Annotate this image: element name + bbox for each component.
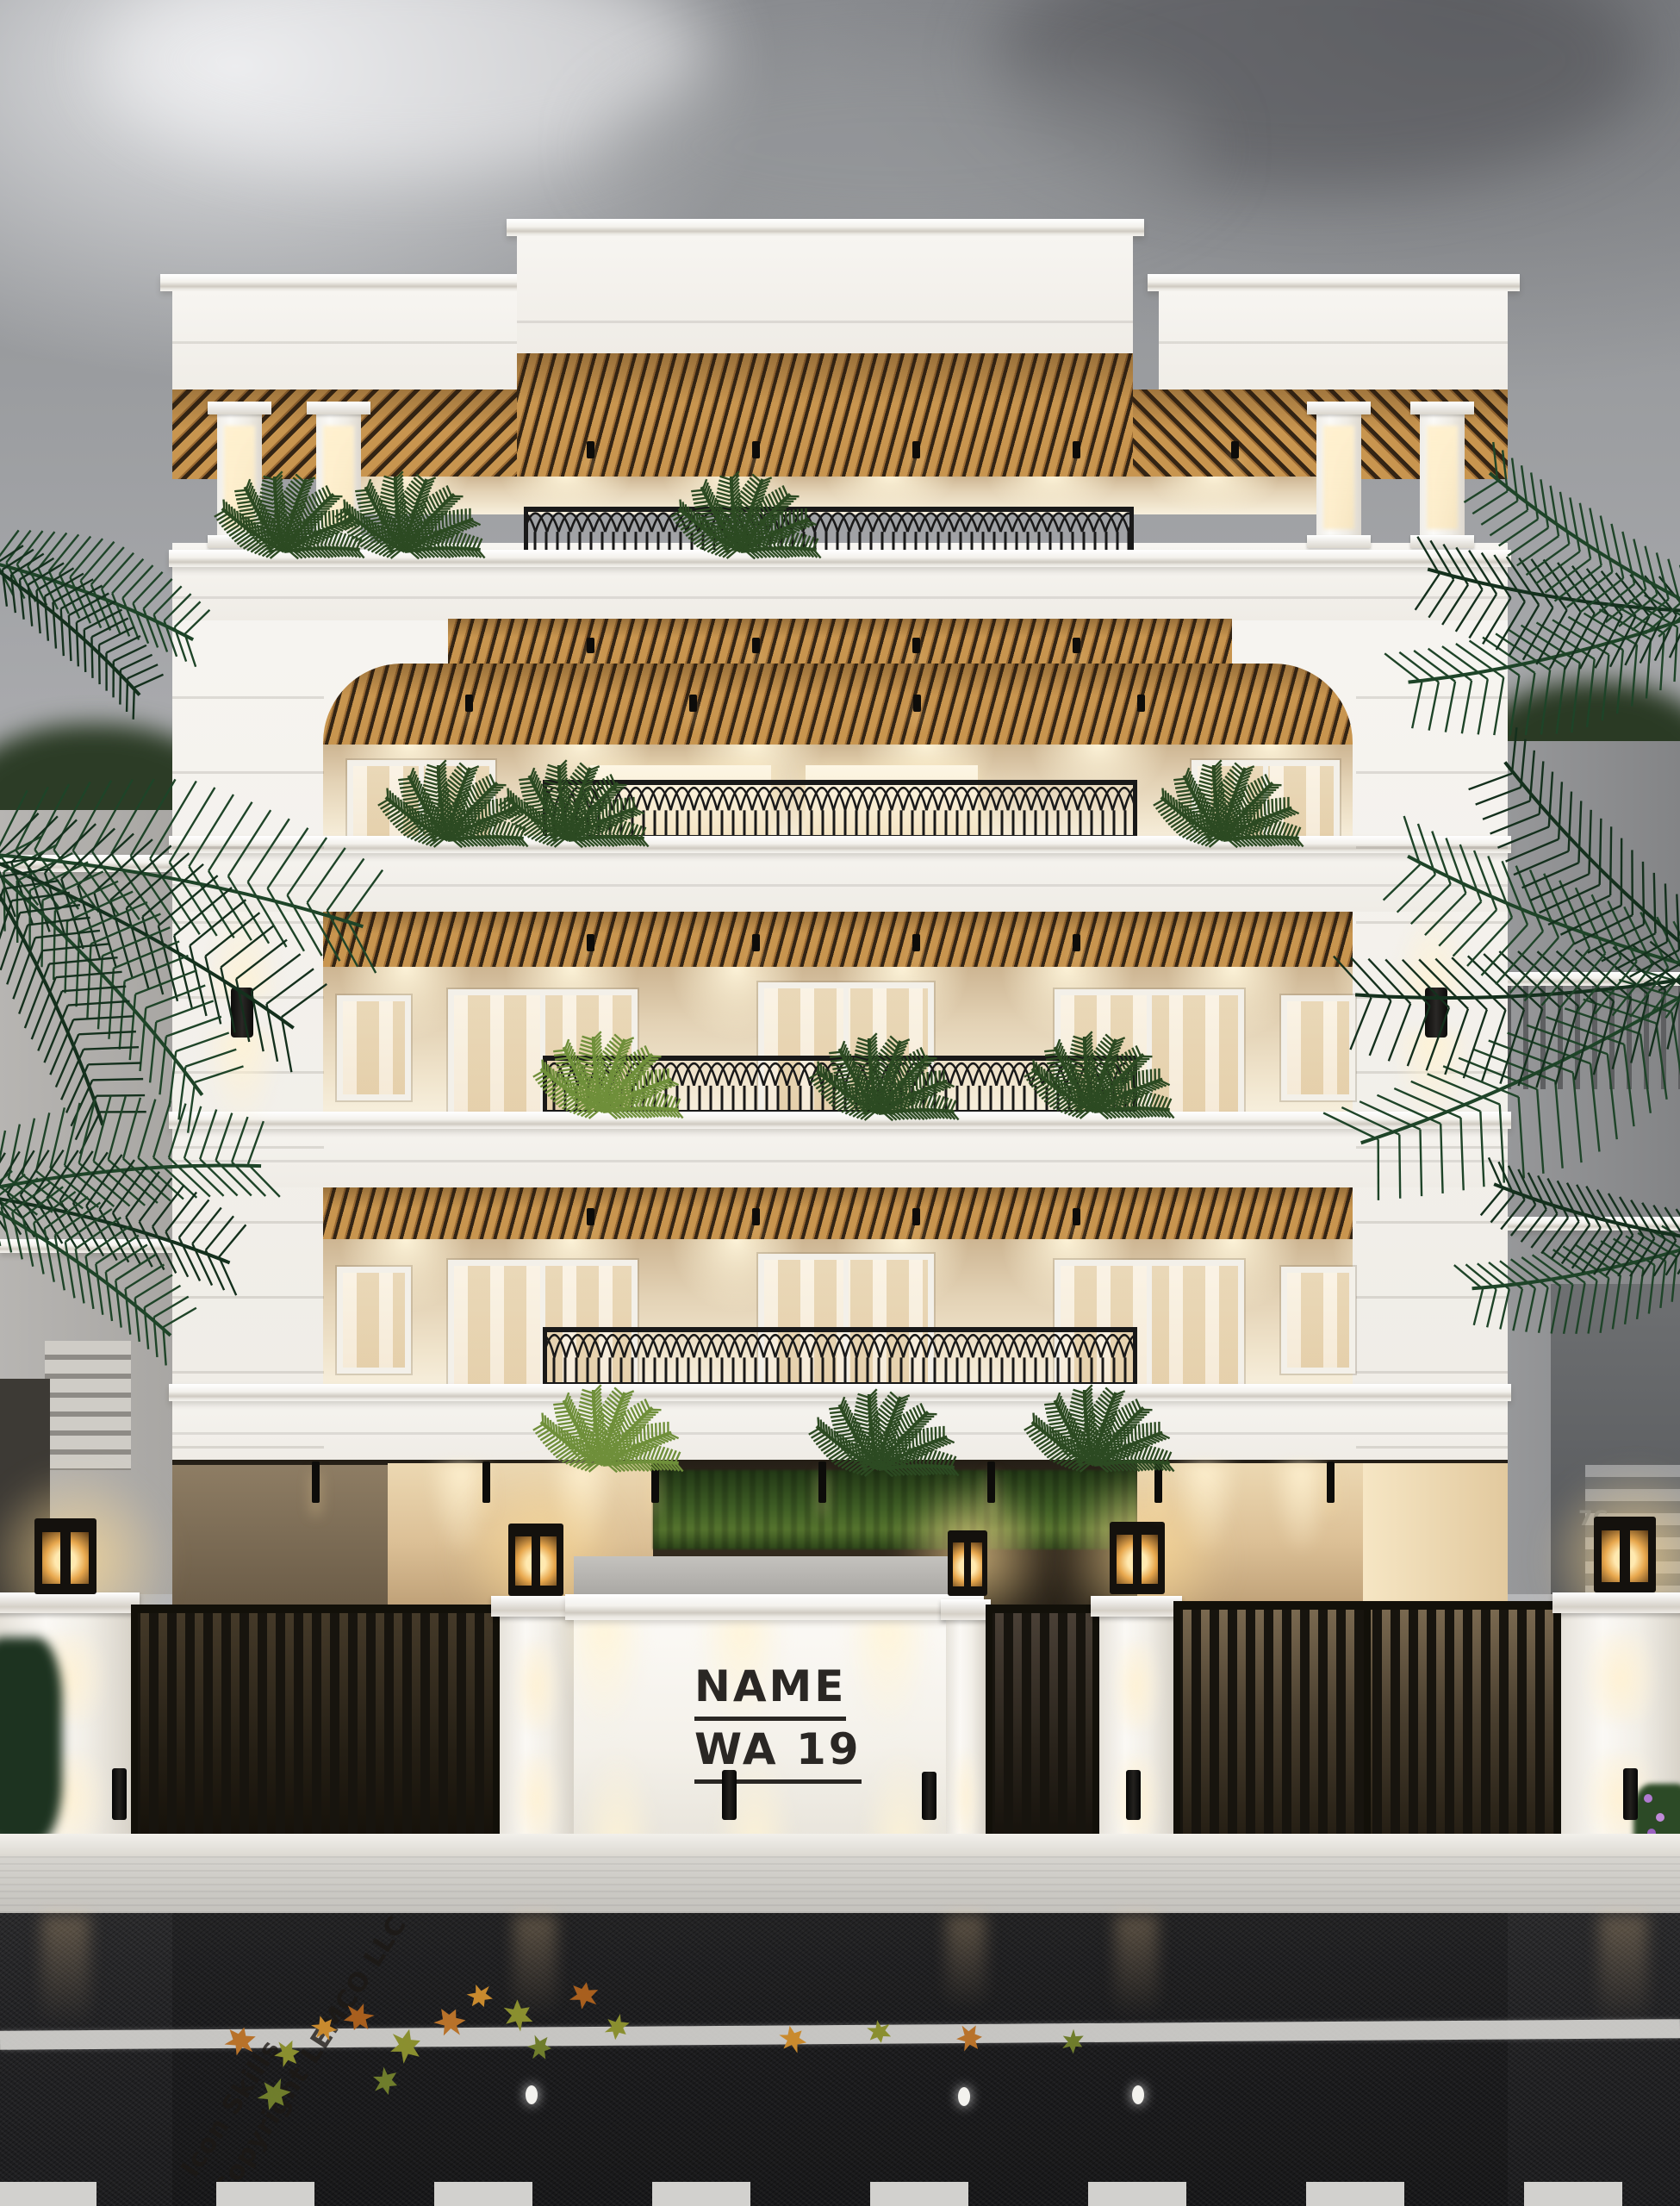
- wall-sconce-icon: [231, 988, 253, 1038]
- soffit-wood-f4: [323, 1187, 1353, 1239]
- pedestrian-gate: [986, 1605, 1099, 1854]
- gate-lamp-icon: [1110, 1522, 1165, 1594]
- stilt-wall-bright-right: [1363, 1463, 1508, 1606]
- reflection-speck: [526, 2085, 538, 2104]
- reflection-speck: [958, 2087, 970, 2106]
- fence-left: [131, 1605, 500, 1856]
- name-plate: NAME WA 19: [694, 1658, 862, 1784]
- gate-lamp-icon: [34, 1518, 96, 1594]
- bollard-light-icon: [112, 1768, 127, 1820]
- gate-lamp-icon: [948, 1530, 987, 1596]
- window: [337, 995, 411, 1100]
- terrace-column: [1420, 407, 1465, 545]
- window: [1281, 995, 1355, 1100]
- sidewalk: [0, 1856, 1680, 1913]
- sconce-downlight: [186, 1032, 298, 1170]
- sconce-downlight: [1377, 1032, 1489, 1170]
- curb: [0, 1834, 1680, 1856]
- roof-cornice-center: [507, 219, 1144, 236]
- slab-cornice: [169, 836, 1511, 853]
- slab-groove: [172, 884, 1508, 887]
- sconce-uplight: [186, 867, 298, 996]
- slab-groove: [172, 1432, 1508, 1435]
- arch-ceiling-wood: [323, 664, 1353, 745]
- soffit-wood-center: [448, 619, 1232, 665]
- bollard-light-icon: [922, 1772, 936, 1820]
- roof-band-left-wing: [172, 291, 521, 396]
- reflection-speck: [1132, 2085, 1144, 2104]
- roof-groove: [1159, 341, 1508, 344]
- crosswalk: [0, 2182, 1680, 2206]
- neighbor-cornice-left: [0, 855, 177, 872]
- shrub-left: [0, 1637, 62, 1844]
- gate-lamp-icon: [1594, 1517, 1656, 1592]
- flower-dots: [1644, 1794, 1652, 1803]
- terrace-column: [1316, 407, 1361, 545]
- name-wall-cap: [565, 1594, 984, 1620]
- light-reflection: [513, 1915, 557, 2018]
- balcony-railing-f2: [543, 780, 1137, 838]
- neighbor-balcony-rail-right: [1506, 986, 1680, 1089]
- light-reflection: [1599, 1915, 1647, 2027]
- light-reflection: [41, 1915, 90, 2027]
- bollard-light-icon: [1126, 1770, 1141, 1820]
- roof-cornice-left-wing: [160, 274, 532, 291]
- gate-lamp-icon: [508, 1524, 563, 1596]
- roof-band-center: [517, 236, 1133, 355]
- window: [337, 1267, 411, 1374]
- roof-groove: [172, 341, 521, 344]
- balcony-railing-f3: [543, 1056, 1137, 1113]
- stilt-wall-dim: [172, 1465, 388, 1606]
- light-reflection: [946, 1915, 986, 2010]
- soffit-wood-f3: [323, 912, 1353, 967]
- slab-cornice: [169, 550, 1511, 567]
- roof-band-right-wing: [1159, 291, 1508, 396]
- railing-svg: [524, 507, 1134, 555]
- slab-cornice: [169, 1112, 1511, 1129]
- slab-cornice: [169, 1384, 1511, 1401]
- name-plate-line1: NAME: [694, 1658, 846, 1721]
- railing-svg: [543, 1056, 1137, 1113]
- sconce-uplight: [1377, 867, 1489, 996]
- cloud: [603, 52, 1206, 241]
- window: [1192, 760, 1340, 841]
- railing-svg: [543, 780, 1137, 838]
- roof-soffit-wood-center: [517, 353, 1133, 479]
- neighbor-cornice-right: [1506, 972, 1680, 986]
- light-reflection: [1115, 1915, 1158, 2018]
- window: [347, 760, 495, 841]
- gray-band-behind-wall: [574, 1556, 975, 1596]
- neighbor-cornice-right: [1506, 1217, 1680, 1231]
- railing-svg: [543, 1327, 1137, 1386]
- window: [1281, 1267, 1355, 1374]
- roof-cornice-right-wing: [1148, 274, 1520, 291]
- driveway-gate: [1173, 1601, 1561, 1854]
- name-plate-line2: WA 19: [694, 1721, 862, 1784]
- terrace-column: [316, 407, 361, 545]
- wall-sconce-icon: [1425, 988, 1447, 1038]
- slab-groove: [172, 1160, 1508, 1162]
- terrace-column: [217, 407, 262, 545]
- render-scene: 7C: [0, 0, 1680, 2206]
- gate-pillar: [946, 1599, 986, 1853]
- neighbor-cornice-left: [0, 1239, 177, 1253]
- bollard-light-icon: [722, 1770, 737, 1820]
- balcony-railing-f4: [543, 1327, 1137, 1386]
- neighbor-fence-left: [45, 1341, 131, 1470]
- roof-groove: [517, 321, 1133, 323]
- terrace-railing: [524, 507, 1134, 555]
- slab-groove: [172, 596, 1508, 599]
- bollard-light-icon: [1623, 1768, 1638, 1820]
